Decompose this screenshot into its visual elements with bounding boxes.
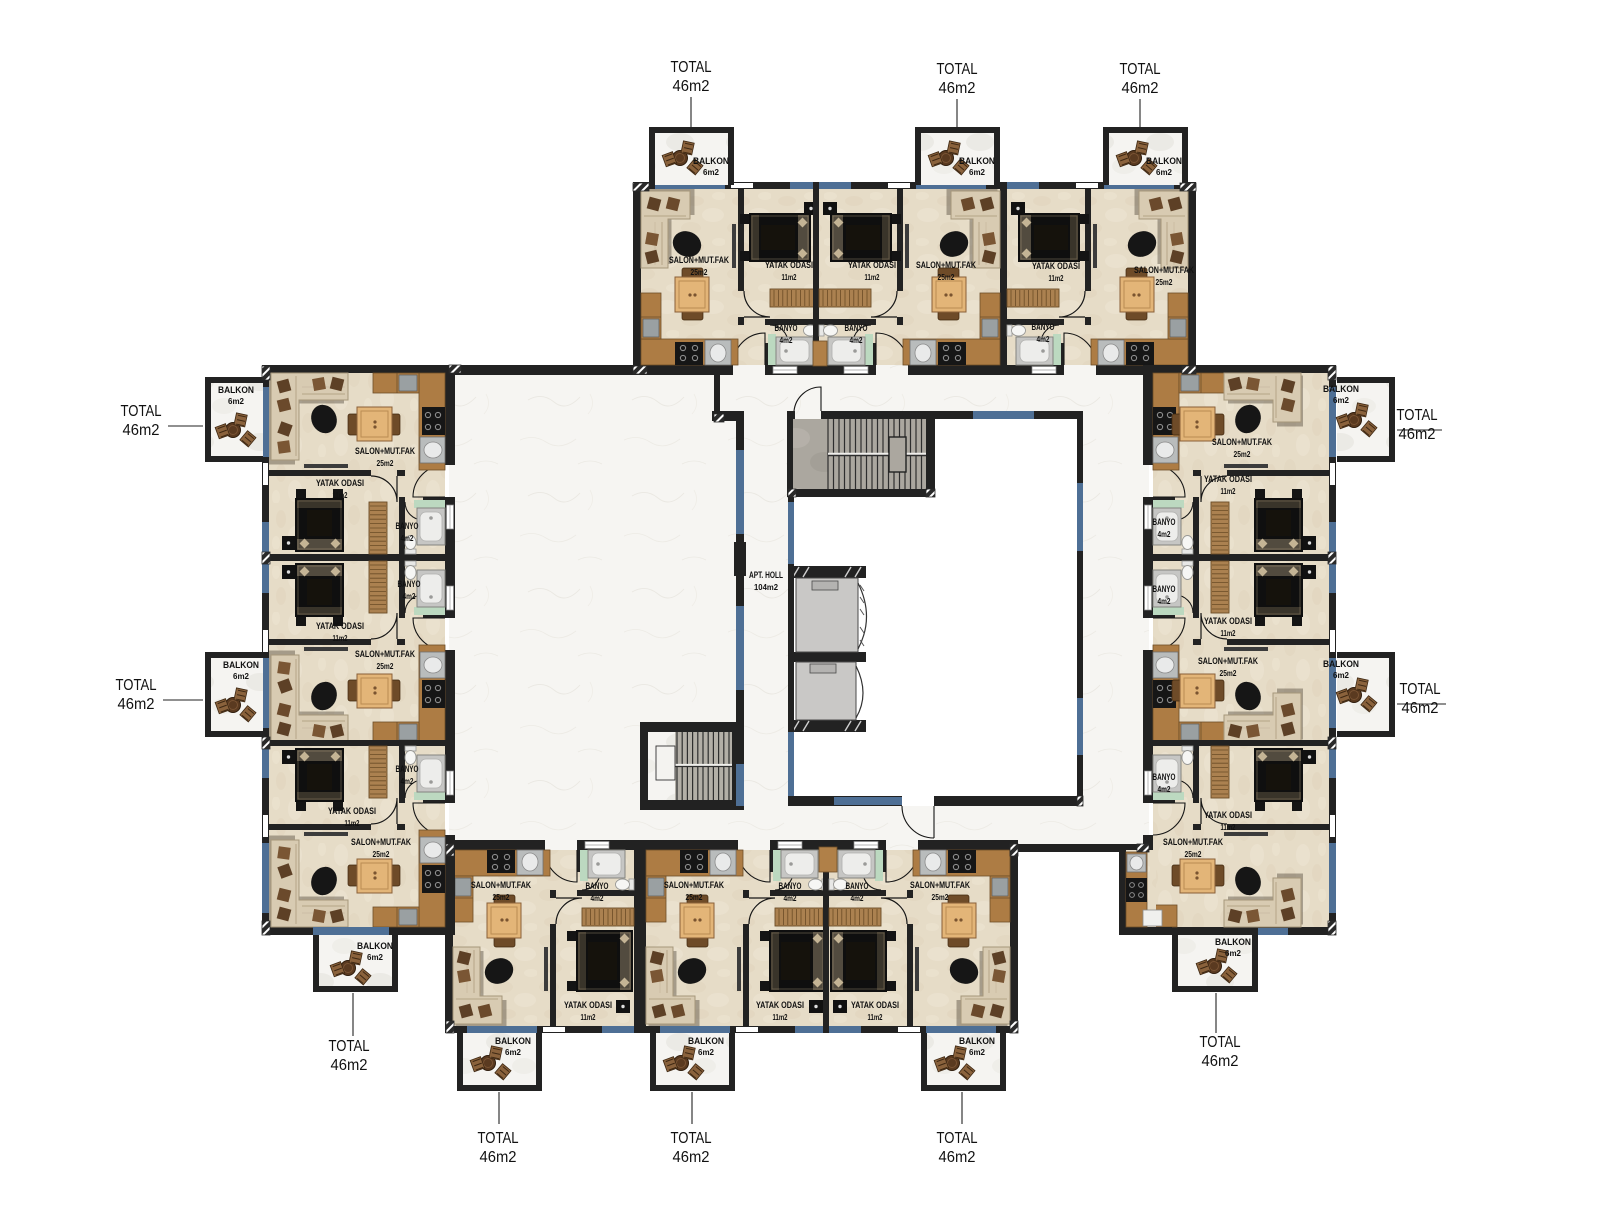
svg-text:4m2: 4m2 xyxy=(780,335,793,345)
svg-text:TOTAL: TOTAL xyxy=(1120,61,1161,78)
svg-text:6m2: 6m2 xyxy=(969,167,985,177)
svg-text:SALON+MUT.FAK: SALON+MUT.FAK xyxy=(1212,437,1273,447)
svg-text:25m2: 25m2 xyxy=(1156,277,1173,287)
svg-text:46m2: 46m2 xyxy=(939,1149,976,1166)
svg-text:25m2: 25m2 xyxy=(1234,449,1251,459)
svg-text:TOTAL: TOTAL xyxy=(329,1038,370,1055)
svg-text:25m2: 25m2 xyxy=(493,892,510,902)
svg-text:SALON+MUT.FAK: SALON+MUT.FAK xyxy=(355,446,416,456)
svg-text:YATAK ODASI: YATAK ODASI xyxy=(316,478,364,488)
svg-text:25m2: 25m2 xyxy=(938,272,955,282)
svg-text:BANYO: BANYO xyxy=(1153,772,1176,782)
svg-text:6m2: 6m2 xyxy=(1333,395,1349,405)
svg-text:YATAK ODASI: YATAK ODASI xyxy=(1204,810,1252,820)
svg-text:46m2: 46m2 xyxy=(1202,1053,1239,1070)
svg-text:11m2: 11m2 xyxy=(1221,822,1236,832)
svg-text:TOTAL: TOTAL xyxy=(121,403,162,420)
svg-text:SALON+MUT.FAK: SALON+MUT.FAK xyxy=(669,255,730,265)
svg-text:25m2: 25m2 xyxy=(691,267,708,277)
svg-text:SALON+MUT.FAK: SALON+MUT.FAK xyxy=(910,880,971,890)
svg-text:BALKON: BALKON xyxy=(1323,659,1359,669)
svg-text:4m2: 4m2 xyxy=(1158,784,1171,794)
svg-text:TOTAL: TOTAL xyxy=(671,59,712,76)
svg-text:TOTAL: TOTAL xyxy=(1397,407,1438,424)
svg-text:6m2: 6m2 xyxy=(228,396,244,406)
svg-text:BANYO: BANYO xyxy=(396,764,419,774)
svg-text:6m2: 6m2 xyxy=(698,1047,714,1057)
svg-text:BALKON: BALKON xyxy=(1146,156,1182,166)
svg-text:SALON+MUT.FAK: SALON+MUT.FAK xyxy=(355,649,416,659)
svg-text:SALON+MUT.FAK: SALON+MUT.FAK xyxy=(1163,837,1224,847)
svg-text:11m2: 11m2 xyxy=(333,490,348,500)
svg-text:6m2: 6m2 xyxy=(1156,167,1172,177)
svg-text:YATAK ODASI: YATAK ODASI xyxy=(328,806,376,816)
svg-text:YATAK ODASI: YATAK ODASI xyxy=(848,260,896,270)
svg-text:SALON+MUT.FAK: SALON+MUT.FAK xyxy=(1134,265,1195,275)
svg-text:BANYO: BANYO xyxy=(845,323,868,333)
svg-text:BANYO: BANYO xyxy=(775,323,798,333)
svg-text:4m2: 4m2 xyxy=(1037,334,1050,344)
svg-text:6m2: 6m2 xyxy=(703,167,719,177)
svg-text:4m2: 4m2 xyxy=(401,533,414,543)
svg-text:46m2: 46m2 xyxy=(123,422,160,439)
svg-text:BALKON: BALKON xyxy=(495,1036,531,1046)
svg-text:YATAK ODASI: YATAK ODASI xyxy=(756,1000,804,1010)
svg-text:11m2: 11m2 xyxy=(1049,273,1064,283)
svg-text:46m2: 46m2 xyxy=(1122,80,1159,97)
svg-text:TOTAL: TOTAL xyxy=(671,1130,712,1147)
svg-text:APT. HOLL: APT. HOLL xyxy=(749,570,783,580)
svg-text:BALKON: BALKON xyxy=(688,1036,724,1046)
svg-text:YATAK ODASI: YATAK ODASI xyxy=(316,621,364,631)
svg-text:SALON+MUT.FAK: SALON+MUT.FAK xyxy=(664,880,725,890)
svg-text:46m2: 46m2 xyxy=(331,1057,368,1074)
svg-text:SALON+MUT.FAK: SALON+MUT.FAK xyxy=(471,880,532,890)
svg-text:46m2: 46m2 xyxy=(480,1149,517,1166)
svg-text:25m2: 25m2 xyxy=(377,458,394,468)
svg-text:6m2: 6m2 xyxy=(505,1047,521,1057)
svg-text:6m2: 6m2 xyxy=(969,1047,985,1057)
svg-text:BALKON: BALKON xyxy=(959,1036,995,1046)
svg-text:6m2: 6m2 xyxy=(233,671,249,681)
svg-text:4m2: 4m2 xyxy=(784,893,797,903)
svg-text:4m2: 4m2 xyxy=(401,776,414,786)
svg-text:SALON+MUT.FAK: SALON+MUT.FAK xyxy=(1198,656,1259,666)
svg-text:BALKON: BALKON xyxy=(357,941,393,951)
svg-text:TOTAL: TOTAL xyxy=(1400,681,1441,698)
svg-text:BANYO: BANYO xyxy=(1032,322,1055,332)
svg-text:11m2: 11m2 xyxy=(1221,486,1236,496)
svg-text:6m2: 6m2 xyxy=(1333,670,1349,680)
svg-text:BANYO: BANYO xyxy=(1153,517,1176,527)
svg-text:BANYO: BANYO xyxy=(398,579,421,589)
svg-text:25m2: 25m2 xyxy=(686,892,703,902)
svg-text:11m2: 11m2 xyxy=(581,1012,596,1022)
svg-text:4m2: 4m2 xyxy=(850,335,863,345)
svg-text:104m2: 104m2 xyxy=(754,582,778,592)
svg-text:46m2: 46m2 xyxy=(1402,700,1439,717)
svg-text:11m2: 11m2 xyxy=(345,818,360,828)
svg-text:4m2: 4m2 xyxy=(851,893,864,903)
svg-text:BALKON: BALKON xyxy=(1215,937,1251,947)
svg-text:BALKON: BALKON xyxy=(218,385,254,395)
svg-text:25m2: 25m2 xyxy=(1220,668,1237,678)
svg-text:6m2: 6m2 xyxy=(1225,948,1241,958)
svg-text:TOTAL: TOTAL xyxy=(116,677,157,694)
svg-text:4m2: 4m2 xyxy=(1158,529,1171,539)
svg-text:YATAK ODASI: YATAK ODASI xyxy=(765,260,813,270)
svg-text:11m2: 11m2 xyxy=(782,272,797,282)
svg-text:SALON+MUT.FAK: SALON+MUT.FAK xyxy=(916,260,977,270)
svg-text:46m2: 46m2 xyxy=(118,696,155,713)
svg-text:46m2: 46m2 xyxy=(1399,426,1436,443)
svg-text:YATAK ODASI: YATAK ODASI xyxy=(1032,261,1080,271)
svg-text:BALKON: BALKON xyxy=(959,156,995,166)
svg-text:TOTAL: TOTAL xyxy=(1200,1034,1241,1051)
svg-text:BALKON: BALKON xyxy=(1323,384,1359,394)
svg-text:TOTAL: TOTAL xyxy=(478,1130,519,1147)
svg-text:46m2: 46m2 xyxy=(939,80,976,97)
svg-text:SALON+MUT.FAK: SALON+MUT.FAK xyxy=(351,837,412,847)
svg-text:46m2: 46m2 xyxy=(673,1149,710,1166)
svg-text:BALKON: BALKON xyxy=(693,156,729,166)
svg-text:TOTAL: TOTAL xyxy=(937,61,978,78)
svg-text:11m2: 11m2 xyxy=(865,272,880,282)
svg-text:YATAK ODASI: YATAK ODASI xyxy=(1204,474,1252,484)
svg-text:11m2: 11m2 xyxy=(868,1012,883,1022)
svg-text:25m2: 25m2 xyxy=(373,849,390,859)
svg-text:11m2: 11m2 xyxy=(773,1012,788,1022)
svg-text:BANYO: BANYO xyxy=(1153,584,1176,594)
svg-text:11m2: 11m2 xyxy=(1221,628,1236,638)
svg-text:11m2: 11m2 xyxy=(333,633,348,643)
svg-text:4m2: 4m2 xyxy=(1158,596,1171,606)
svg-text:6m2: 6m2 xyxy=(367,952,383,962)
svg-text:25m2: 25m2 xyxy=(377,661,394,671)
svg-text:BANYO: BANYO xyxy=(779,881,802,891)
svg-text:25m2: 25m2 xyxy=(932,892,949,902)
svg-text:YATAK ODASI: YATAK ODASI xyxy=(564,1000,612,1010)
svg-text:4m2: 4m2 xyxy=(591,893,604,903)
svg-text:BANYO: BANYO xyxy=(846,881,869,891)
svg-text:BANYO: BANYO xyxy=(586,881,609,891)
svg-text:TOTAL: TOTAL xyxy=(937,1130,978,1147)
svg-text:BANYO: BANYO xyxy=(396,521,419,531)
svg-text:YATAK ODASI: YATAK ODASI xyxy=(1204,616,1252,626)
svg-text:4m2: 4m2 xyxy=(403,591,416,601)
svg-text:46m2: 46m2 xyxy=(673,78,710,95)
svg-text:YATAK ODASI: YATAK ODASI xyxy=(851,1000,899,1010)
svg-text:25m2: 25m2 xyxy=(1185,849,1202,859)
svg-text:BALKON: BALKON xyxy=(223,660,259,670)
